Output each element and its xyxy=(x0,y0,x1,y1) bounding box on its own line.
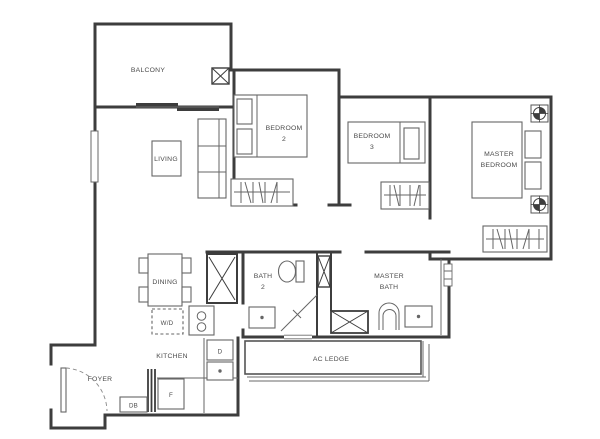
room-label-dining: DINING xyxy=(152,279,177,286)
basin-icon xyxy=(405,306,432,327)
room-label-kitchen: KITCHEN xyxy=(156,353,188,360)
floor-plan-drawing: BALCONY LIVING BEDROOM 2 BEDROOM 3 xyxy=(0,0,600,439)
toilet-icon xyxy=(379,303,399,330)
room-label-foyer: FOYER xyxy=(88,376,113,383)
washer-dryer-label: W/D xyxy=(161,320,174,327)
shower-screen-icon xyxy=(281,295,317,331)
db-label: DB xyxy=(129,403,138,410)
floor-plan-page: BALCONY LIVING BEDROOM 2 BEDROOM 3 xyxy=(0,0,600,439)
room-label-balcony: BALCONY xyxy=(131,67,165,74)
wardrobe-icon xyxy=(231,179,293,206)
bed-icon xyxy=(472,122,541,198)
basin-icon xyxy=(249,307,275,328)
shaft-icon xyxy=(207,254,237,303)
room-label-bedroom2-number: 2 xyxy=(282,136,286,143)
room-label-living: LIVING xyxy=(154,156,178,163)
kitchen-sink-icon xyxy=(207,362,233,380)
hob-icon xyxy=(189,306,214,335)
shaft-icon xyxy=(318,256,330,287)
wardrobe-icon xyxy=(483,226,547,252)
room-label-bedroom3: BEDROOM xyxy=(354,133,391,140)
balcony-shaft-icon xyxy=(212,68,229,84)
dining-chair-icon xyxy=(139,287,148,302)
room-label-master-bedroom2: BEDROOM xyxy=(481,162,518,169)
room-label-master-bath: MASTER xyxy=(374,273,404,280)
room-label-ac-ledge: AC LEDGE xyxy=(313,356,350,363)
room-label-bedroom3-number: 3 xyxy=(370,144,374,151)
room-label-bedroom2: BEDROOM xyxy=(266,125,303,132)
column-icon xyxy=(531,105,549,123)
entry-door-swing-icon xyxy=(61,368,107,412)
dining-chair-icon xyxy=(182,258,191,273)
bed-icon xyxy=(348,122,425,163)
fridge-label: F xyxy=(169,392,173,399)
room-label-master-bedroom: MASTER xyxy=(484,151,514,158)
toilet-icon xyxy=(279,261,305,282)
balcony-sliding-door-icon xyxy=(136,105,219,110)
window-icon xyxy=(444,264,452,286)
sofa-icon xyxy=(198,119,226,198)
room-label-bath2: BATH xyxy=(254,273,273,280)
window-icon xyxy=(91,131,98,182)
window-icon xyxy=(284,335,312,339)
room-label-bath2-number: 2 xyxy=(261,284,265,291)
column-icon xyxy=(531,196,549,214)
sliding-door-icon xyxy=(148,369,155,412)
dining-chair-icon xyxy=(182,287,191,302)
dryer-label: D xyxy=(218,349,223,356)
room-label-master-bath2: BATH xyxy=(380,284,399,291)
shaft-icon xyxy=(331,311,368,333)
wardrobe-icon xyxy=(381,182,429,209)
dining-chair-icon xyxy=(139,258,148,273)
